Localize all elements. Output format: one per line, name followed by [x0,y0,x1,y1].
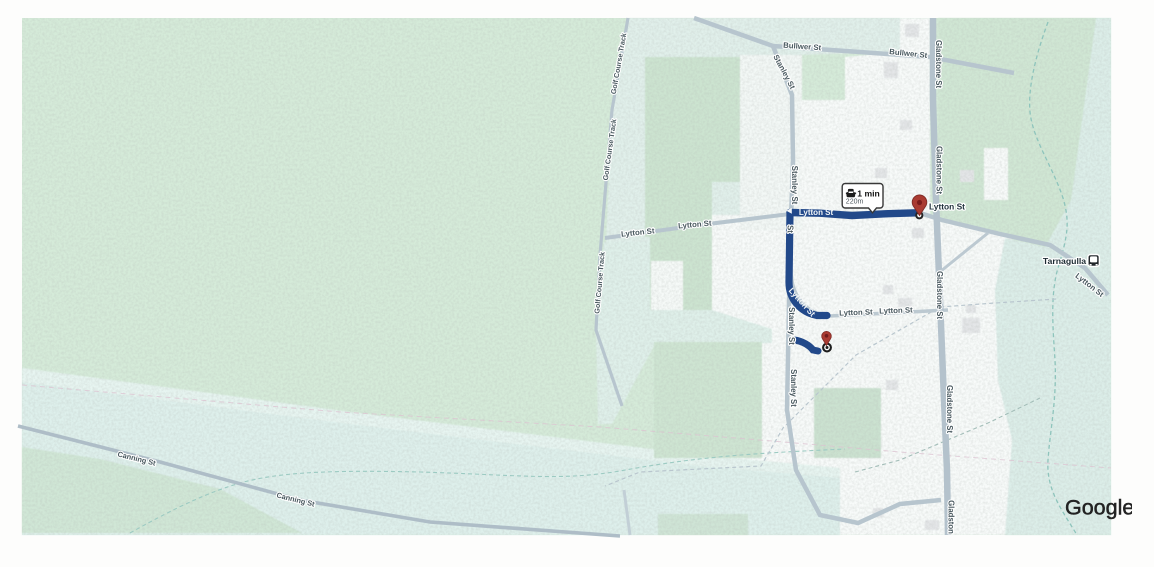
svg-text:Stanley St: Stanley St [789,369,798,407]
svg-text:Lytton St: Lytton St [799,208,834,217]
svg-text:Lytton St: Lytton St [879,305,913,315]
svg-text:Tarnagulla: Tarnagulla [1043,256,1086,266]
svg-text:Gladston: Gladston [947,500,956,534]
svg-text:Gladstone St: Gladstone St [945,385,954,433]
svg-text:1 min: 1 min [857,189,879,199]
svg-text:Stanley St: Stanley St [787,307,796,345]
svg-text:St: St [786,225,795,233]
svg-text:Lytton St: Lytton St [929,202,965,212]
svg-text:Gladstone St: Gladstone St [935,146,944,194]
svg-text:Gladstone St: Gladstone St [935,271,944,319]
svg-text:Gladstone St: Gladstone St [934,40,943,88]
svg-text:Google: Google [1065,496,1134,520]
svg-text:Lytton St: Lytton St [839,307,873,317]
svg-text:Stanley St: Stanley St [790,166,799,205]
svg-text:220m: 220m [846,198,864,205]
